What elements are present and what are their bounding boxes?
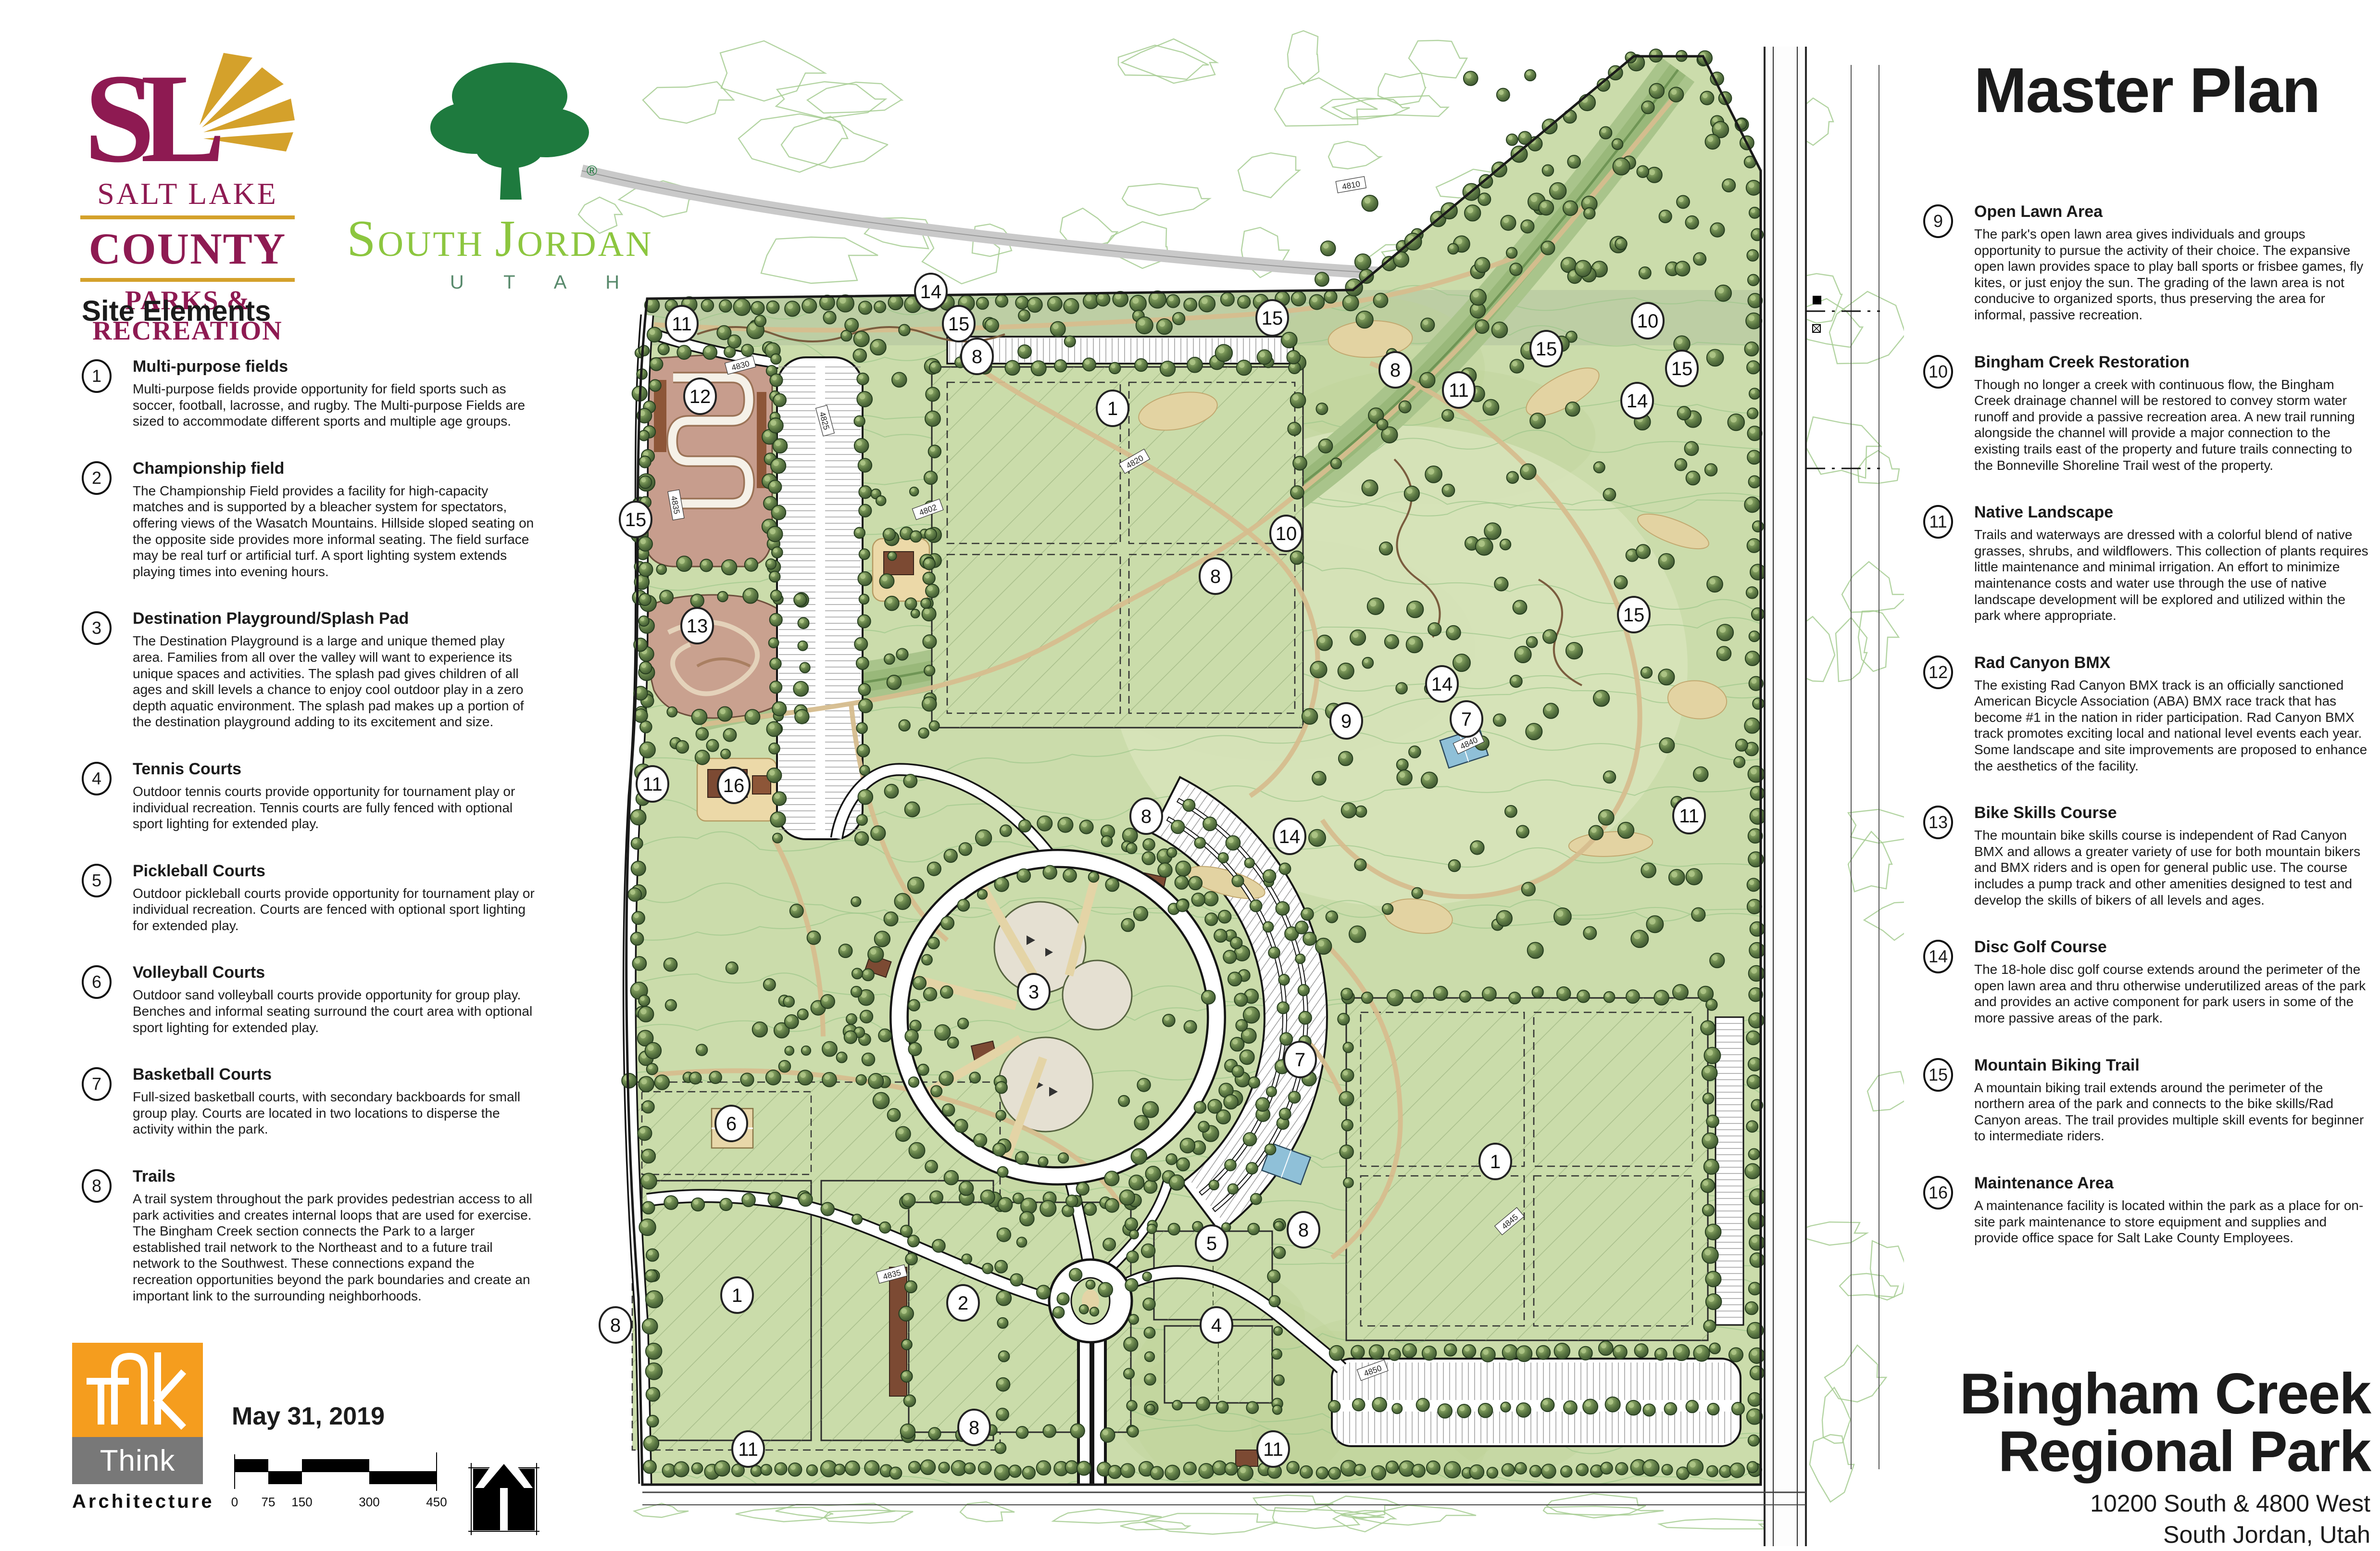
map-callout-15: 15 <box>1618 597 1650 632</box>
svg-text:16: 16 <box>723 775 745 796</box>
map-callout-1: 1 <box>1479 1144 1511 1179</box>
svg-text:1: 1 <box>1107 398 1118 419</box>
map-callout-10: 10 <box>1270 516 1302 551</box>
map-callout-1: 1 <box>721 1277 753 1313</box>
legend-item-8: 8TrailsA trail system throughout the par… <box>82 1167 536 1304</box>
legend-item-5: 5Pickleball CourtsOutdoor pickleball cou… <box>82 862 536 934</box>
architecture-label: Architecture <box>72 1491 203 1513</box>
item-title: Pickleball Courts <box>133 862 536 881</box>
item-title: Championship field <box>133 459 536 478</box>
svg-text:5: 5 <box>1206 1233 1217 1254</box>
svg-text:11: 11 <box>1679 806 1699 827</box>
item-description: The mountain bike skills course is indep… <box>1974 827 2370 908</box>
svg-text:14: 14 <box>1279 826 1301 847</box>
svg-text:8: 8 <box>610 1315 621 1336</box>
map-callout-11: 11 <box>1673 798 1705 833</box>
south-jordan-logo: ® SOUTH JORDAN U T A H <box>303 50 697 293</box>
item-description: The Destination Playground is a large an… <box>133 633 536 730</box>
svg-text:7: 7 <box>1295 1049 1305 1071</box>
map-callout-14: 14 <box>1274 819 1305 854</box>
map-callout-1: 1 <box>1097 391 1128 426</box>
item-number-badge: 8 <box>82 1169 112 1203</box>
map-callout-15: 15 <box>1530 331 1562 366</box>
item-description: The 18-hole disc golf course extends aro… <box>1974 961 2370 1026</box>
slco-county: COUNTY <box>79 223 296 274</box>
map-callout-4: 4 <box>1201 1307 1232 1343</box>
item-title: Maintenance Area <box>1974 1174 2370 1193</box>
map-callout-8: 8 <box>1200 558 1231 594</box>
map-callout-11: 11 <box>637 766 668 802</box>
map-callout-14: 14 <box>915 274 947 309</box>
site-elements-panel: Site Elements 1Multi-purpose fieldsMulti… <box>82 294 536 1334</box>
item-number-badge: 15 <box>1923 1058 1953 1092</box>
map-callout-8: 8 <box>958 1410 990 1445</box>
item-description: Outdoor pickleball courts provide opport… <box>133 885 536 934</box>
master-plan-sheet: 4830483548254820484048454835485048104802… <box>0 0 2380 1551</box>
item-number-badge: 16 <box>1923 1176 1953 1210</box>
svg-text:15: 15 <box>1536 339 1557 360</box>
map-callout-10: 10 <box>1632 303 1664 339</box>
map-callout-8: 8 <box>1379 352 1411 388</box>
map-callout-11: 11 <box>666 306 698 341</box>
item-title: Bingham Creek Restoration <box>1974 353 2370 372</box>
south-jordan-wordmark: SOUTH JORDAN <box>303 209 697 269</box>
gold-rule <box>80 278 295 282</box>
legend-item-14: 14Disc Golf CourseThe 18-hole disc golf … <box>1923 938 2370 1026</box>
item-number-badge: 12 <box>1923 656 1953 689</box>
svg-text:15: 15 <box>1671 358 1693 379</box>
map-callout-15: 15 <box>943 306 975 341</box>
item-title: Trails <box>133 1167 536 1186</box>
legend-item-13: 13Bike Skills CourseThe mountain bike sk… <box>1923 804 2370 908</box>
svg-text:11: 11 <box>1263 1439 1283 1460</box>
plan-date: May 31, 2019 <box>232 1402 385 1431</box>
page-title: Master Plan <box>1923 54 2370 126</box>
south-jordan-utah: U T A H <box>303 272 697 293</box>
map-callout-11: 11 <box>732 1431 764 1467</box>
svg-text:10: 10 <box>1276 523 1297 544</box>
park-name-line1: Bingham Creek <box>1885 1365 2370 1423</box>
svg-text:14: 14 <box>920 281 942 303</box>
map-callout-8: 8 <box>600 1307 631 1343</box>
legend-item-3: 3Destination Playground/Splash PadThe De… <box>82 609 536 730</box>
item-description: Full-sized basketball courts, with secon… <box>133 1089 536 1137</box>
svg-text:14: 14 <box>1627 391 1648 412</box>
svg-text:150: 150 <box>291 1495 312 1509</box>
svg-text:8: 8 <box>972 346 982 367</box>
map-callout-11: 11 <box>1443 372 1475 408</box>
item-title: Tennis Courts <box>133 760 536 779</box>
legend-item-16: 16Maintenance AreaA maintenance facility… <box>1923 1174 2370 1246</box>
master-plan-panel: Master Plan 9Open Lawn AreaThe park's op… <box>1923 54 2370 1276</box>
map-callout-5: 5 <box>1196 1225 1228 1261</box>
map-callout-15: 15 <box>620 502 651 537</box>
item-description: The existing Rad Canyon BMX track is an … <box>1974 677 2370 774</box>
svg-text:®: ® <box>587 163 597 179</box>
map-callout-16: 16 <box>718 768 750 803</box>
svg-text:12: 12 <box>689 386 711 407</box>
map-callout-8: 8 <box>961 339 993 374</box>
svg-text:11: 11 <box>1449 380 1469 401</box>
map-callout-14: 14 <box>1621 383 1653 418</box>
item-description: Though no longer a creek with continuous… <box>1974 377 2370 474</box>
item-description: The Championship Field provides a facili… <box>133 483 536 580</box>
svg-text:8: 8 <box>1210 566 1221 587</box>
legend-item-12: 12Rad Canyon BMXThe existing Rad Canyon … <box>1923 654 2370 774</box>
legend-item-9: 9Open Lawn AreaThe park's open lawn area… <box>1923 202 2370 323</box>
item-description: Multi-purpose fields provide opportunity… <box>133 381 536 429</box>
legend-item-6: 6Volleyball CourtsOutdoor sand volleybal… <box>82 963 536 1035</box>
map-callout-8: 8 <box>1288 1212 1319 1248</box>
title-block: Bingham Creek Regional Park 10200 South … <box>1885 1365 2376 1551</box>
park-address: 10200 South & 4800 West South Jordan, Ut… <box>1885 1488 2370 1551</box>
svg-text:3: 3 <box>1028 982 1039 1003</box>
think-architecture-logo: Think Architecture <box>72 1343 203 1513</box>
map-callout-11: 11 <box>1257 1431 1289 1467</box>
item-title: Disc Golf Course <box>1974 938 2370 957</box>
legend-item-1: 1Multi-purpose fieldsMulti-purpose field… <box>82 357 536 429</box>
svg-text:6: 6 <box>726 1113 737 1135</box>
svg-text:0: 0 <box>231 1495 238 1509</box>
south-jordan-tree-icon: ® <box>303 50 697 209</box>
svg-text:4: 4 <box>1211 1315 1222 1336</box>
slco-sunburst-icon: SL <box>79 53 296 173</box>
map-callout-15: 15 <box>1256 300 1288 336</box>
item-number-badge: 1 <box>82 359 112 393</box>
map-callout-14: 14 <box>1426 666 1458 702</box>
item-title: Volleyball Courts <box>133 963 536 982</box>
svg-text:1: 1 <box>1490 1151 1501 1173</box>
map-callout-15: 15 <box>1666 351 1698 386</box>
scale-bar: 0 75 150 300 450 <box>230 1452 456 1515</box>
legend-item-7: 7Basketball CourtsFull-sized basketball … <box>82 1065 536 1137</box>
legend-item-2: 2Championship fieldThe Championship Fiel… <box>82 459 536 580</box>
slco-salt-lake: SALT LAKE <box>79 176 296 212</box>
svg-text:1: 1 <box>732 1285 742 1306</box>
svg-text:450: 450 <box>426 1495 447 1509</box>
site-plan-map: 4830483548254820484048454835485048104802… <box>553 26 1904 1549</box>
legend-item-10: 10Bingham Creek RestorationThough no lon… <box>1923 353 2370 474</box>
map-callout-12: 12 <box>684 378 716 414</box>
item-number-badge: 14 <box>1923 940 1953 973</box>
legend-item-15: 15Mountain Biking TrailA mountain biking… <box>1923 1056 2370 1144</box>
map-callout-6: 6 <box>715 1106 747 1141</box>
item-number-badge: 6 <box>82 965 112 999</box>
svg-text:7: 7 <box>1461 709 1472 730</box>
svg-text:11: 11 <box>642 774 663 795</box>
site-elements-list: 1Multi-purpose fieldsMulti-purpose field… <box>82 357 536 1304</box>
elevation-label: 4810 <box>1336 177 1366 193</box>
svg-text:8: 8 <box>1141 806 1152 827</box>
svg-text:14: 14 <box>1431 674 1453 695</box>
item-title: Native Landscape <box>1974 503 2370 522</box>
item-number-badge: 13 <box>1923 806 1953 839</box>
item-number-badge: 9 <box>1923 204 1953 238</box>
svg-text:15: 15 <box>948 314 970 335</box>
svg-text:15: 15 <box>1262 308 1283 329</box>
item-description: A maintenance facility is located within… <box>1974 1198 2370 1246</box>
legend-item-11: 11Native LandscapeTrails and waterways a… <box>1923 503 2370 624</box>
svg-text:9: 9 <box>1341 711 1352 732</box>
map-callout-9: 9 <box>1330 703 1362 739</box>
item-title: Open Lawn Area <box>1974 202 2370 221</box>
item-number-badge: 3 <box>82 611 112 645</box>
item-title: Mountain Biking Trail <box>1974 1056 2370 1075</box>
item-description: Outdoor sand volleyball courts provide o… <box>133 987 536 1035</box>
map-callout-13: 13 <box>681 608 713 643</box>
item-title: Rad Canyon BMX <box>1974 654 2370 672</box>
north-arrow-icon <box>465 1444 542 1535</box>
svg-text:8: 8 <box>1390 360 1401 381</box>
item-description: Outdoor tennis courts provide opportunit… <box>133 783 536 832</box>
item-description: A mountain biking trail extends around t… <box>1974 1080 2370 1144</box>
think-logo-mark-icon <box>72 1343 203 1437</box>
svg-text:SL: SL <box>84 53 220 173</box>
svg-text:11: 11 <box>738 1439 758 1460</box>
legend-item-4: 4Tennis CourtsOutdoor tennis courts prov… <box>82 760 536 832</box>
item-number-badge: 2 <box>82 461 112 495</box>
svg-text:15: 15 <box>625 509 647 530</box>
item-title: Basketball Courts <box>133 1065 536 1084</box>
master-plan-list: 9Open Lawn AreaThe park's open lawn area… <box>1923 202 2370 1246</box>
item-title: Destination Playground/Splash Pad <box>133 609 536 628</box>
map-callout-7: 7 <box>1451 701 1482 737</box>
map-callout-2: 2 <box>947 1285 979 1321</box>
item-number-badge: 4 <box>82 762 112 795</box>
svg-text:75: 75 <box>262 1495 276 1509</box>
item-number-badge: 7 <box>82 1067 112 1101</box>
item-title: Bike Skills Course <box>1974 804 2370 822</box>
svg-text:15: 15 <box>1623 605 1645 626</box>
svg-text:13: 13 <box>687 616 708 637</box>
item-description: Trails and waterways are dressed with a … <box>1974 527 2370 624</box>
map-callout-7: 7 <box>1284 1042 1316 1077</box>
site-elements-title: Site Elements <box>82 294 536 328</box>
svg-text:8: 8 <box>969 1417 979 1438</box>
item-description: A trail system throughout the park provi… <box>133 1191 536 1304</box>
map-callout-8: 8 <box>1130 798 1162 834</box>
park-name-line2: Regional Park <box>1885 1423 2370 1480</box>
svg-text:10: 10 <box>1637 311 1659 332</box>
item-number-badge: 11 <box>1923 505 1953 539</box>
svg-text:8: 8 <box>1298 1220 1309 1241</box>
item-number-badge: 5 <box>82 864 112 897</box>
svg-text:11: 11 <box>672 314 692 335</box>
svg-text:2: 2 <box>958 1293 968 1314</box>
item-number-badge: 10 <box>1923 355 1953 389</box>
think-label: Think <box>72 1437 203 1484</box>
gold-rule <box>80 215 295 219</box>
map-callout-3: 3 <box>1018 974 1050 1009</box>
svg-text:300: 300 <box>359 1495 379 1509</box>
item-title: Multi-purpose fields <box>133 357 536 376</box>
item-description: The park's open lawn area gives individu… <box>1974 226 2370 323</box>
